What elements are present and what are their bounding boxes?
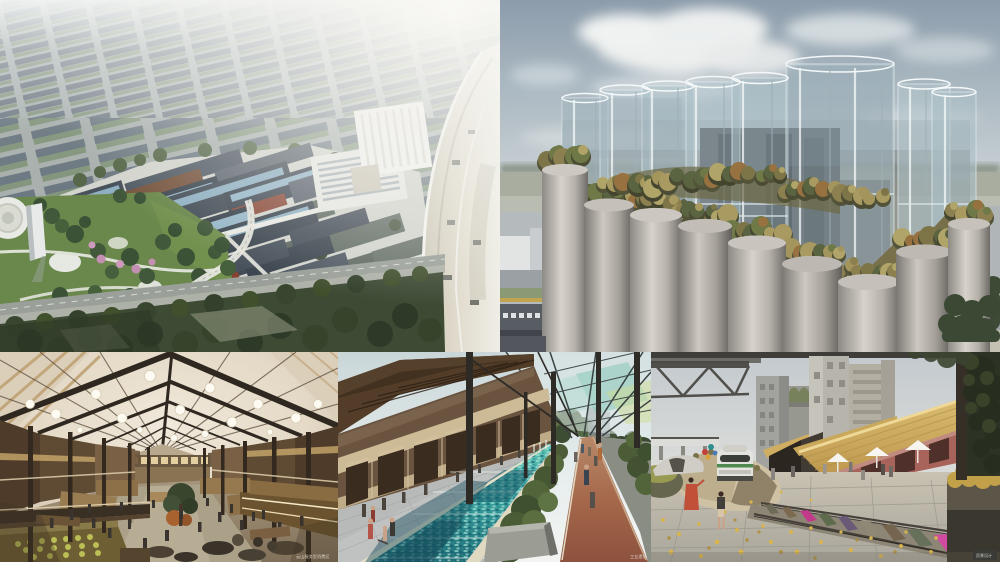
svg-text:工业遗存: 工业遗存 — [630, 553, 647, 560]
svg-text:云山服务型消费区: 云山服务型消费区 — [296, 553, 330, 560]
svg-text:愿景设计: 愿景设计 — [976, 552, 992, 558]
